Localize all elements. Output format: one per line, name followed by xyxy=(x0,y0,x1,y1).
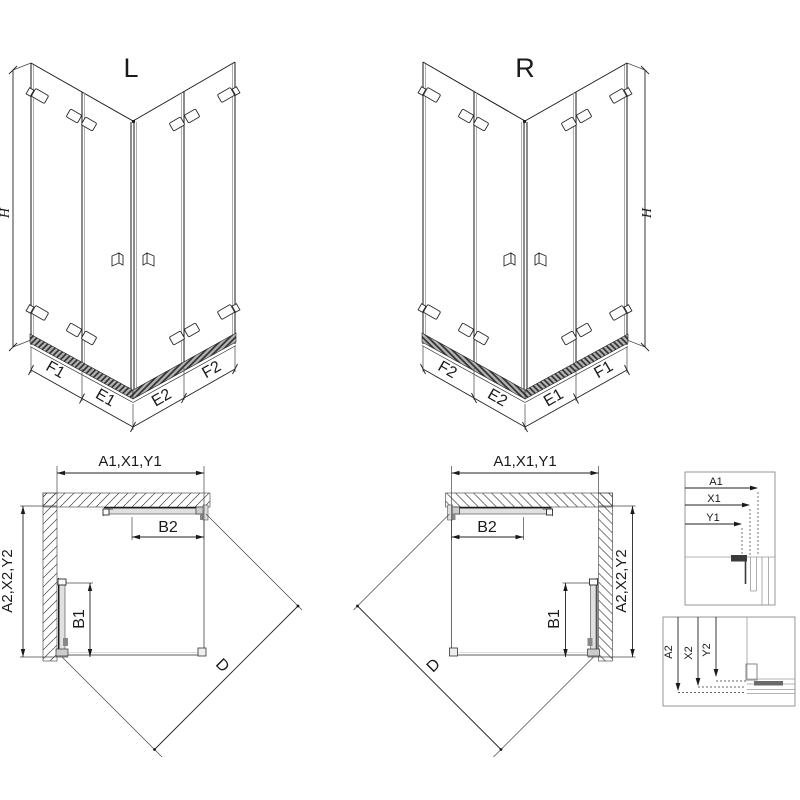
depth-dim-label: A2,X2,Y2 xyxy=(613,549,630,612)
door-handle xyxy=(63,638,68,646)
folded-door-top xyxy=(448,505,553,520)
segment-dim-label: E2 xyxy=(485,386,511,411)
door-handle-knob xyxy=(143,253,154,266)
dimension-diagonal xyxy=(62,514,302,757)
variant-label-right: R xyxy=(515,53,535,83)
folded-door-side xyxy=(56,578,68,656)
wall-bracket xyxy=(217,304,240,320)
plan-right-geometry xyxy=(354,466,636,757)
segment-dim-label: E1 xyxy=(541,386,567,411)
door-top-dim-label: B2 xyxy=(477,519,497,536)
wall-profile-section xyxy=(746,617,795,694)
folded-door-side xyxy=(588,578,600,656)
detail-arrow-y2 xyxy=(714,617,719,677)
dimension-door-side xyxy=(563,583,590,657)
corner-profile xyxy=(450,648,458,656)
diagonal-dim-label: D xyxy=(212,656,232,676)
isometric-view-left: L H F1 E1 E2 F2 xyxy=(0,53,240,432)
hinge xyxy=(458,109,592,345)
wall-profile-section xyxy=(731,555,769,605)
wall-bracket xyxy=(26,88,49,104)
height-dim-label: H xyxy=(640,207,655,219)
wall-bracket xyxy=(217,87,240,103)
isometric-view-right: R H F2 E2 E1 F1 xyxy=(418,53,655,432)
segment-dim-label: E2 xyxy=(149,386,175,411)
door-side-dim-label: B1 xyxy=(546,609,563,629)
height-dim-label: H xyxy=(0,207,13,219)
dimension-diagonal xyxy=(354,514,594,757)
detail-dim-label: X2 xyxy=(683,646,695,659)
detail-box-width-dims: A1 X1 Y1 xyxy=(685,472,775,605)
depth-dim-label: A2,X2,Y2 xyxy=(0,549,16,612)
width-dim-label: A1,X1,Y1 xyxy=(98,453,161,470)
door-top-dim-label: B2 xyxy=(158,519,178,536)
wall-section-side xyxy=(43,493,57,661)
detail-dim-label: X1 xyxy=(707,493,720,505)
wall-section-top xyxy=(446,493,613,507)
door-handle-knob xyxy=(112,253,123,266)
door-side-dim-label: B1 xyxy=(71,609,88,629)
plan-view-left: A1,X1,Y1 B2 A2,X2,Y2 B1 D xyxy=(0,453,302,757)
door-handle-knob xyxy=(504,253,546,266)
segment-dim-label: F2 xyxy=(199,358,224,382)
plan-view-right: A1,X1,Y1 B2 A2,X2,Y2 B1 D xyxy=(354,453,636,757)
corner-profile xyxy=(198,648,206,656)
plan-left-geometry xyxy=(20,466,302,757)
variant-label-left: L xyxy=(123,53,138,83)
wall-bracket xyxy=(26,305,49,321)
corner-pivot-dot xyxy=(132,120,135,123)
width-dim-label: A1,X1,Y1 xyxy=(493,453,556,470)
detail-dim-label: A1 xyxy=(709,476,722,488)
detail-dim-label: Y1 xyxy=(706,512,719,524)
detail-box-depth-dims: A2 X2 Y2 xyxy=(663,617,795,706)
wall-section-top xyxy=(43,493,210,507)
door-pivot-bracket xyxy=(56,649,68,656)
segment-dim-label: F2 xyxy=(435,358,460,382)
folded-door-top xyxy=(103,505,208,520)
wall-section-side xyxy=(599,493,613,661)
shower-enclosure-technical-drawing: L H F1 E1 E2 F2 xyxy=(0,0,800,800)
diagonal-dim-label: D xyxy=(424,656,444,676)
detail-arrow-a2 xyxy=(676,617,681,691)
detail-dim-label: Y2 xyxy=(701,643,713,656)
detail-dim-label: A2 xyxy=(663,645,675,658)
detail-arrow-x2 xyxy=(696,617,701,686)
drawing-canvas: L H F1 E1 E2 F2 xyxy=(0,0,800,800)
